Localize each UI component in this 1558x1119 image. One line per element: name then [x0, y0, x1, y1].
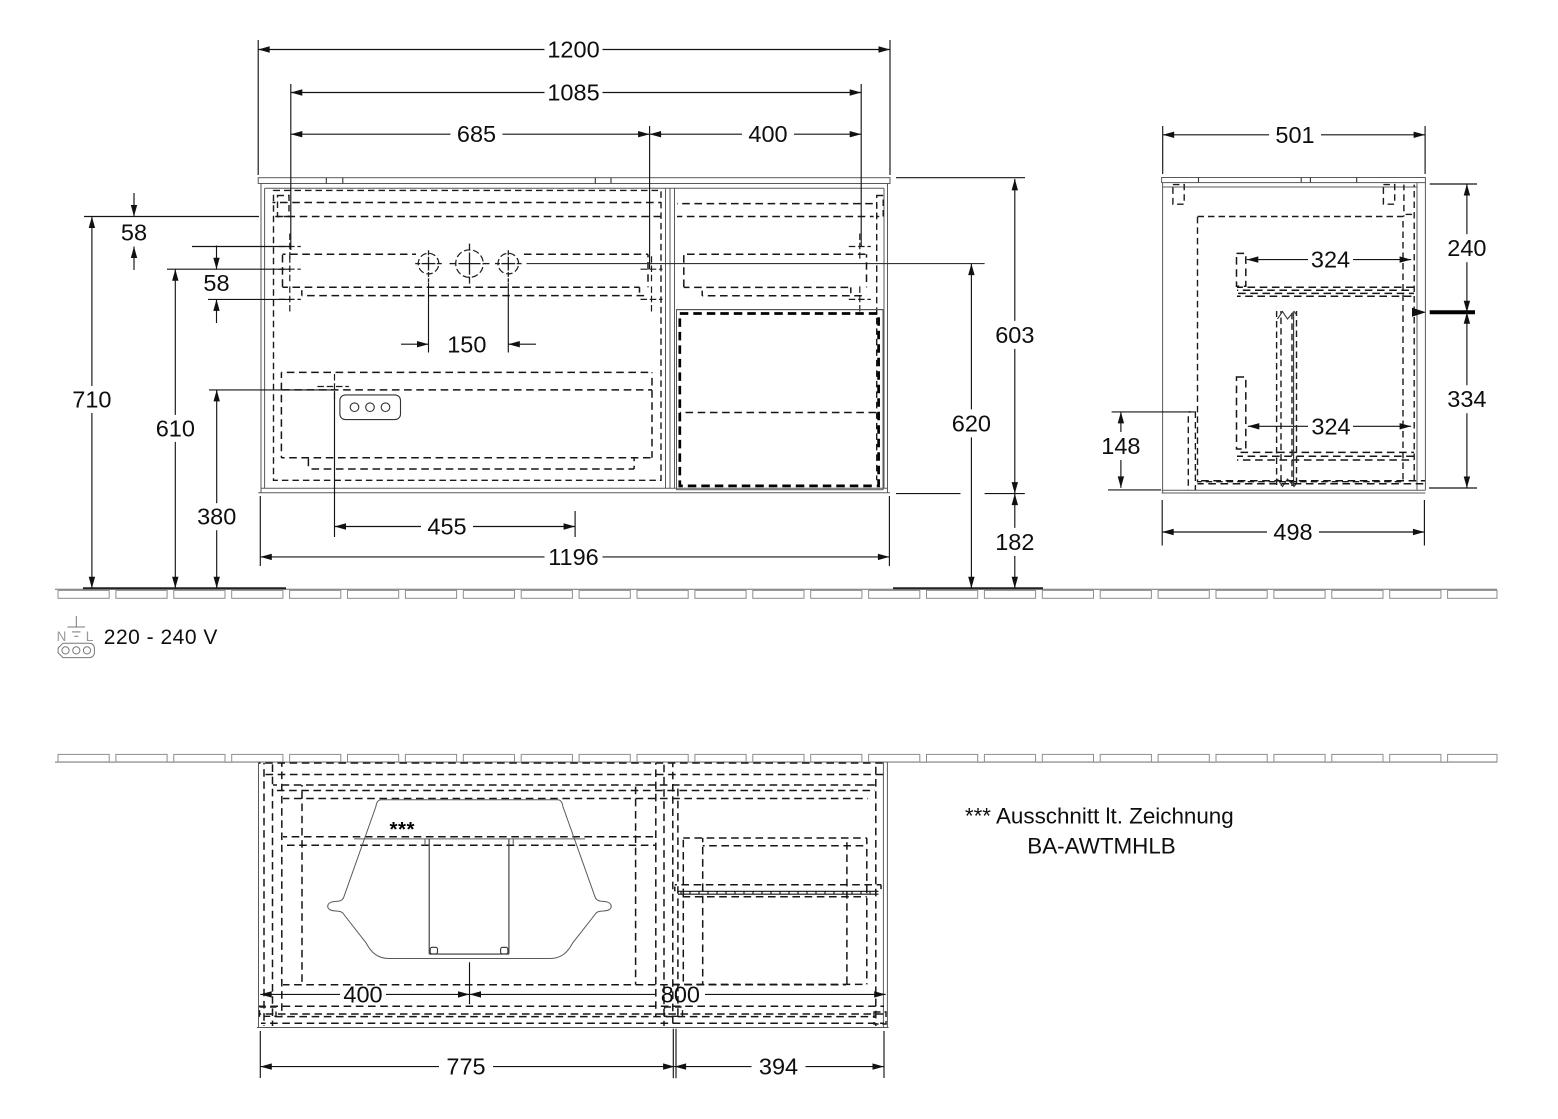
svg-text:220 - 240 V: 220 - 240 V [104, 626, 218, 649]
svg-text:1200: 1200 [547, 37, 599, 63]
svg-text:BA-AWTMHLB: BA-AWTMHLB [1027, 833, 1175, 858]
svg-text:L: L [86, 629, 94, 644]
svg-text:800: 800 [661, 981, 700, 1007]
svg-text:148: 148 [1101, 433, 1140, 459]
svg-text:775: 775 [446, 1054, 485, 1080]
svg-text:400: 400 [343, 981, 382, 1007]
svg-text:240: 240 [1447, 235, 1486, 261]
svg-text:1196: 1196 [548, 544, 599, 570]
svg-text:58: 58 [121, 220, 147, 246]
svg-text:1085: 1085 [547, 80, 599, 106]
svg-text:***: *** [390, 818, 415, 841]
svg-text:324: 324 [1311, 247, 1350, 273]
svg-text:58: 58 [203, 270, 229, 296]
svg-text:603: 603 [995, 322, 1034, 348]
svg-text:610: 610 [156, 415, 195, 441]
svg-text:400: 400 [748, 121, 787, 147]
svg-text:501: 501 [1275, 122, 1314, 148]
svg-text:685: 685 [457, 121, 496, 147]
svg-text:394: 394 [759, 1054, 798, 1080]
svg-text:498: 498 [1273, 519, 1312, 545]
svg-text:380: 380 [197, 504, 236, 530]
svg-text:182: 182 [995, 529, 1034, 555]
svg-text:455: 455 [427, 514, 466, 540]
svg-text:324: 324 [1311, 413, 1350, 439]
svg-text:*** Ausschnitt lt. Zeichnung: *** Ausschnitt lt. Zeichnung [965, 804, 1234, 829]
svg-text:150: 150 [447, 332, 486, 358]
svg-text:620: 620 [952, 410, 991, 436]
svg-text:710: 710 [72, 387, 111, 413]
svg-text:N: N [57, 629, 67, 644]
svg-text:334: 334 [1447, 386, 1486, 412]
